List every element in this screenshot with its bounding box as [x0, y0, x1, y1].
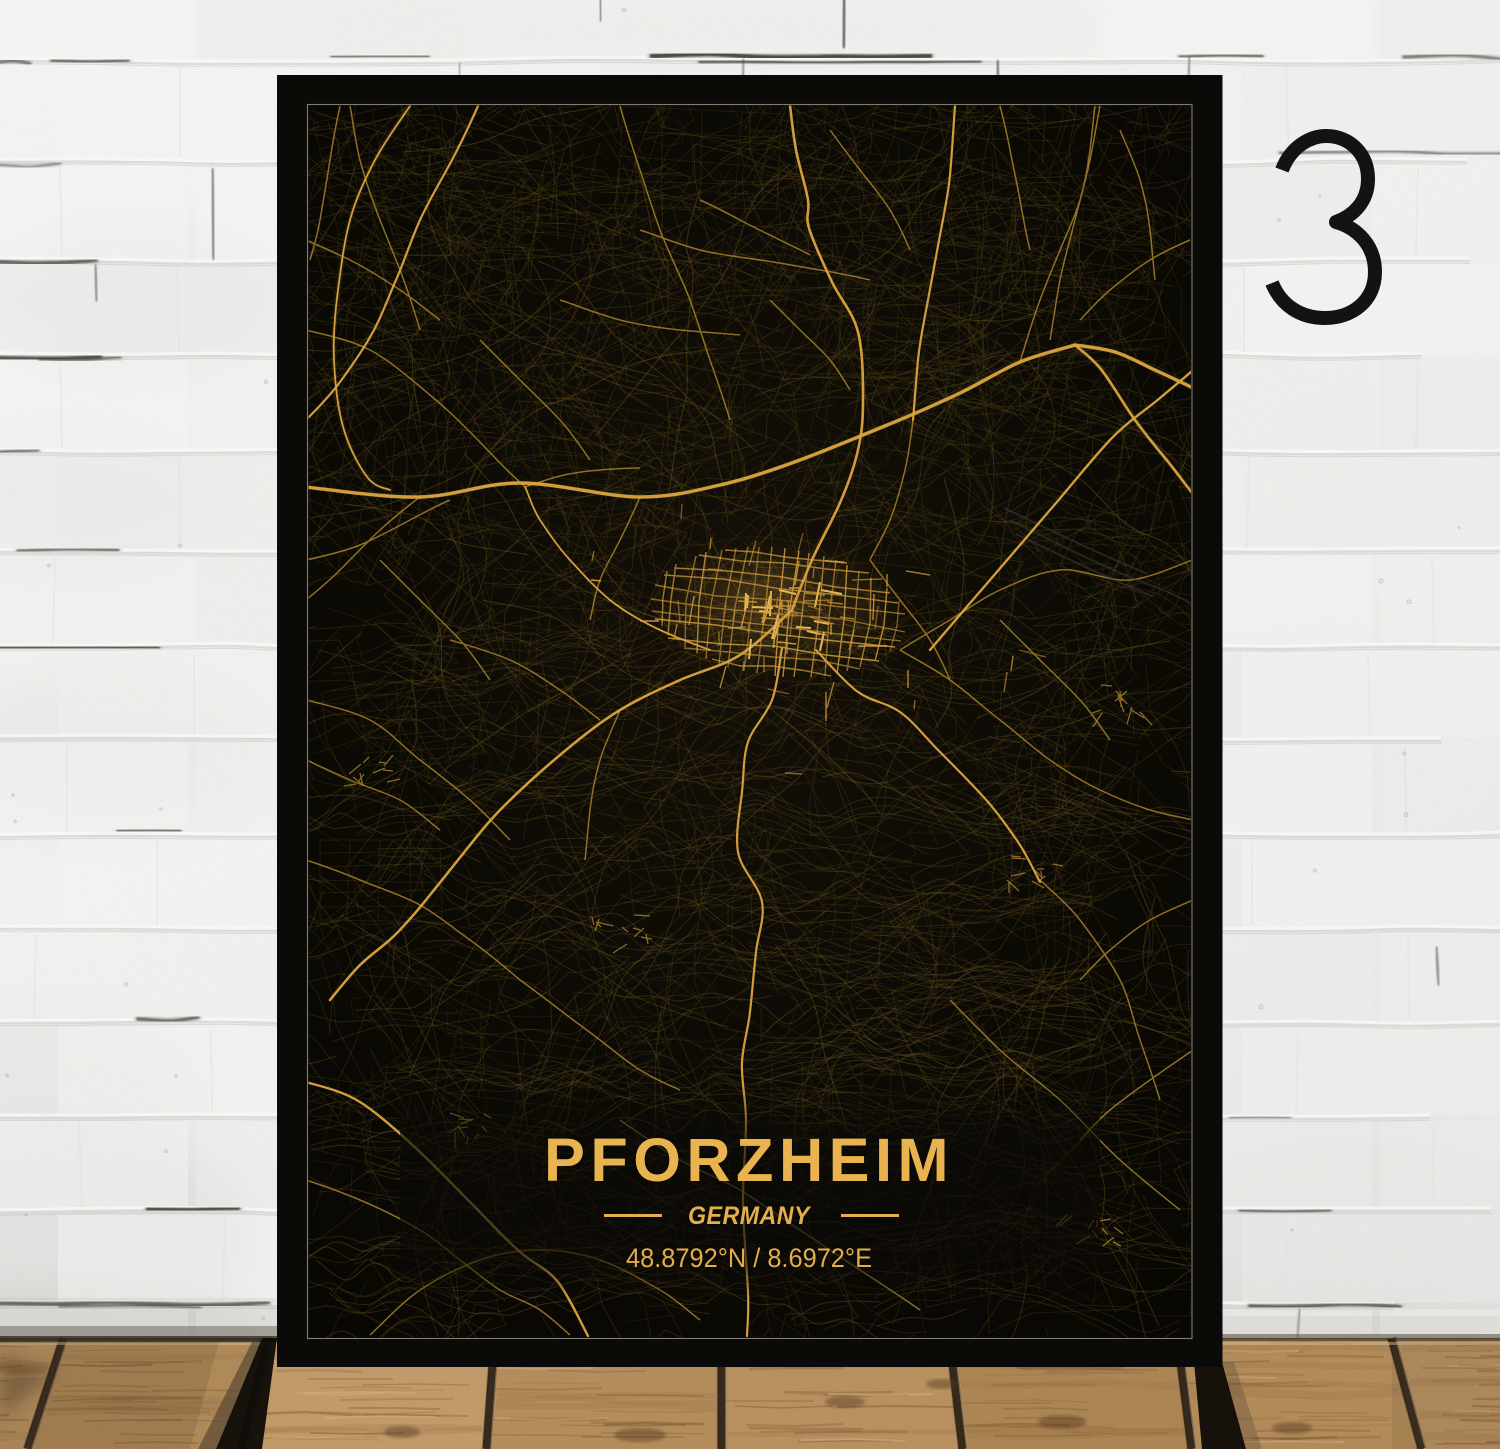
svg-text:48.8792°N / 8.6972°E: 48.8792°N / 8.6972°E — [626, 1243, 872, 1273]
svg-text:GERMANY: GERMANY — [688, 1202, 812, 1230]
svg-text:PFORZHEIM: PFORZHEIM — [544, 1126, 954, 1195]
